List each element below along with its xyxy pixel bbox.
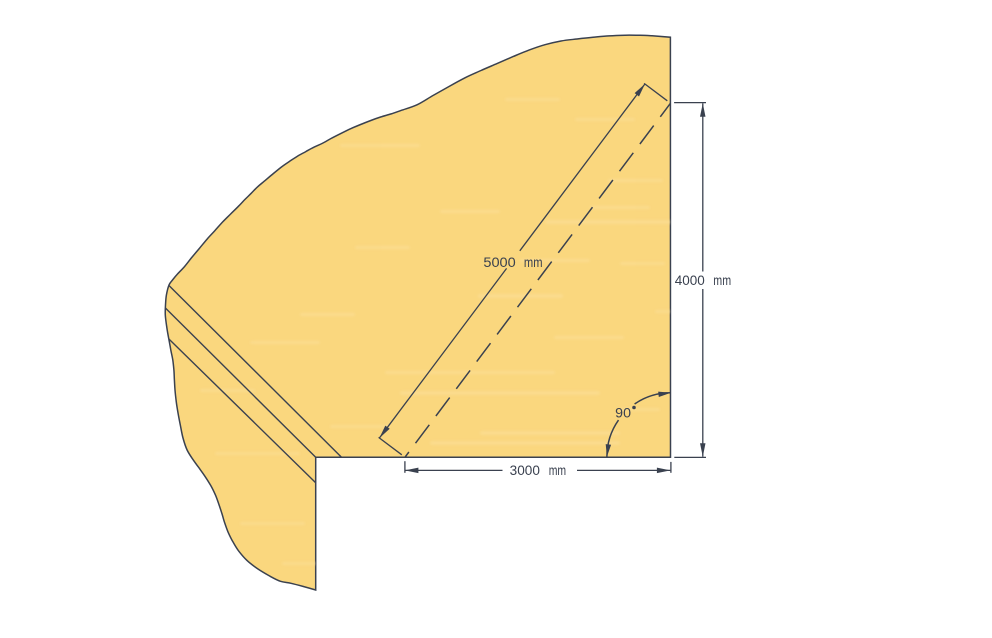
svg-text:mm: mm [549,463,566,478]
svg-text:4000: 4000 [675,273,705,288]
svg-text:5000: 5000 [483,255,515,270]
svg-text:mm: mm [524,255,543,270]
svg-text:90: 90 [615,404,631,420]
svg-text:mm: mm [713,273,731,288]
svg-text:3000: 3000 [510,463,540,478]
